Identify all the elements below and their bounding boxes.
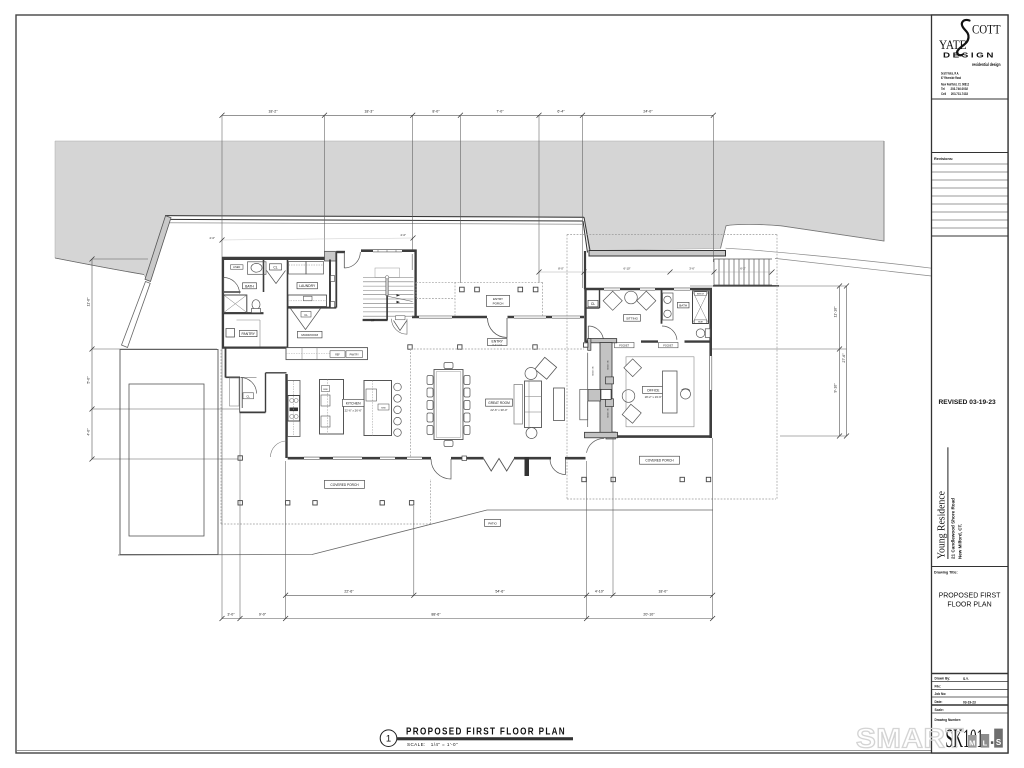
svg-text:Young Residence: Young Residence (935, 491, 947, 559)
svg-text:SEAT: SEAT (698, 321, 704, 324)
svg-text:COVERED PORCH: COVERED PORCH (645, 459, 674, 463)
svg-text:M: M (969, 738, 975, 747)
svg-text:8'-0": 8'-0" (558, 267, 564, 271)
svg-text:Drawn By:: Drawn By: (935, 677, 951, 681)
svg-text:L: L (983, 739, 988, 748)
svg-text:S: S (996, 738, 1002, 747)
svg-text:UP: UP (371, 319, 375, 323)
svg-text:New Milford, CT.: New Milford, CT. (957, 524, 963, 559)
svg-text:LINEN: LINEN (233, 266, 240, 269)
svg-text:54'-6": 54'-6" (495, 590, 505, 594)
svg-text:Tel 203.746.0002: Tel 203.746.0002 (941, 87, 968, 91)
svg-text:18'-3": 18'-3" (364, 110, 374, 114)
svg-text:BUILT-IN: BUILT-IN (593, 366, 595, 375)
svg-text:3'-6": 3'-6" (689, 267, 695, 271)
svg-text:File:: File: (935, 685, 942, 689)
svg-text:BENCH: BENCH (697, 294, 705, 296)
svg-text:KITCHEN: KITCHEN (346, 401, 361, 405)
svg-text:Cell 203.731.7433: Cell 203.731.7433 (941, 92, 968, 96)
svg-text:BUILT-IN: BUILT-IN (608, 360, 610, 369)
svg-text:6'-0" CLG: 6'-0" CLG (492, 344, 502, 346)
svg-text:Drawing Title:: Drawing Title: (934, 571, 958, 575)
svg-text:OFFICE: OFFICE (647, 388, 660, 392)
svg-text:PANTRY: PANTRY (350, 354, 360, 357)
svg-text:POCKET: POCKET (663, 344, 673, 347)
svg-text:6'-2": 6'-2" (740, 267, 746, 271)
svg-text:COTT: COTT (972, 23, 1001, 37)
svg-text:Scale:: Scale: (935, 708, 944, 712)
svg-text:8'-0": 8'-0" (432, 110, 440, 114)
svg-text:New Fairfield, Ct. 06812: New Fairfield, Ct. 06812 (941, 83, 969, 87)
svg-text:LAUNDRY: LAUNDRY (299, 284, 316, 288)
svg-text:PROPOSED FIRST: PROPOSED FIRST (939, 593, 1002, 600)
svg-text:PORCH: PORCH (493, 302, 504, 306)
svg-text:1: 1 (386, 734, 391, 745)
svg-text:PATIO: PATIO (488, 521, 497, 525)
svg-text:22'-6": 22'-6" (344, 590, 354, 594)
svg-text:ENTRY: ENTRY (493, 297, 503, 301)
svg-text:6'-10": 6'-10" (623, 267, 630, 271)
svg-text:REVISED 03-19-23: REVISED 03-19-23 (939, 399, 997, 406)
svg-text:88'-6": 88'-6" (431, 613, 441, 617)
svg-text:18'-2" x 19'-6": 18'-2" x 19'-6" (645, 395, 662, 399)
svg-text:PROPOSED FIRST FLOOR PLAN: PROPOSED FIRST FLOOR PLAN (406, 727, 566, 738)
svg-text:21 Candlewood Shore Road: 21 Candlewood Shore Road (950, 498, 956, 559)
svg-text:5'-0": 5'-0" (87, 376, 91, 384)
svg-text:Date:: Date: (935, 700, 943, 704)
svg-text:residential design: residential design (972, 62, 1001, 67)
svg-text:7'-0": 7'-0" (496, 110, 504, 114)
svg-text:6'-4": 6'-4" (557, 110, 565, 114)
svg-text:4'-10": 4'-10" (595, 590, 605, 594)
svg-text:18'-0": 18'-0" (658, 590, 668, 594)
svg-text:4'-0": 4'-0" (87, 428, 91, 436)
svg-text:11'-10": 11'-10" (834, 306, 838, 318)
svg-text:FLOOR PLAN: FLOOR PLAN (947, 602, 991, 609)
svg-text:9'-0": 9'-0" (259, 613, 267, 617)
svg-text:4'-0": 4'-0" (400, 233, 406, 237)
svg-text:Job No:: Job No: (935, 692, 947, 696)
svg-text:CL: CL (591, 302, 595, 306)
svg-text:24'-0": 24'-0" (643, 110, 653, 114)
svg-text:18'-2": 18'-2" (268, 110, 278, 114)
svg-text:COVERED PORCH: COVERED PORCH (330, 483, 359, 487)
svg-text:CL: CL (246, 394, 250, 398)
svg-text:11'-6": 11'-6" (87, 297, 91, 307)
svg-text:BUILT-IN: BUILT-IN (608, 408, 610, 417)
svg-text:BATH: BATH (245, 284, 254, 288)
svg-text:PANTRY: PANTRY (241, 332, 255, 336)
svg-text:MUDROOM: MUDROOM (301, 333, 318, 337)
svg-text:22'-6" x 26'-6": 22'-6" x 26'-6" (345, 408, 362, 412)
svg-text:Scott Yates, R.A.: Scott Yates, R.A. (941, 72, 959, 76)
svg-text:ENTRY: ENTRY (491, 340, 503, 344)
svg-text:REF: REF (335, 355, 340, 357)
svg-text:4'-0": 4'-0" (209, 236, 215, 240)
svg-text:9'-10": 9'-10" (834, 383, 838, 393)
svg-text:S.Y.: S.Y. (963, 677, 969, 681)
svg-text:Drawing Number:: Drawing Number: (935, 718, 962, 722)
svg-text:GREAT ROOM: GREAT ROOM (488, 401, 510, 405)
svg-text:SCALE: 1/4" = 1'-0": SCALE: 1/4" = 1'-0" (407, 742, 458, 747)
svg-text:SITTING: SITTING (626, 316, 638, 320)
svg-text:20'-10": 20'-10" (643, 613, 655, 617)
svg-text:BATH: BATH (679, 304, 687, 308)
svg-text:3'-0": 3'-0" (227, 613, 235, 617)
svg-text:DESIGN: DESIGN (943, 50, 996, 59)
svg-text:SINK: SINK (323, 389, 328, 391)
svg-text:POCKET: POCKET (619, 344, 629, 347)
svg-text:22'-6" x 30'-0": 22'-6" x 30'-0" (490, 408, 507, 412)
svg-text:67 Riverside Road: 67 Riverside Road (941, 76, 961, 80)
svg-text:CL: CL (304, 313, 308, 317)
svg-text:Revisions:: Revisions: (934, 157, 953, 161)
svg-text:CL: CL (273, 266, 277, 270)
svg-text:SINK: SINK (381, 407, 386, 409)
svg-text:27'-6": 27'-6" (842, 353, 846, 363)
svg-text:03-19-23: 03-19-23 (963, 700, 976, 704)
svg-text:SMART: SMART (856, 723, 964, 754)
